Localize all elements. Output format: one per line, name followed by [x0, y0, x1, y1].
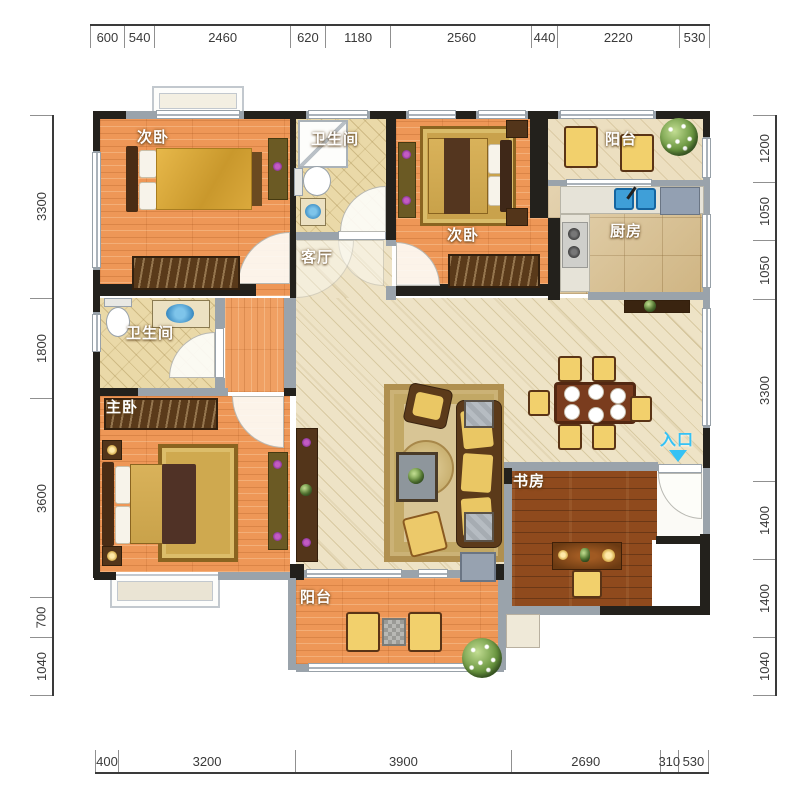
- flower-icon: [273, 532, 282, 541]
- side-table-icon: [464, 512, 494, 542]
- dim-segment: 3200: [119, 750, 296, 772]
- dim-label: 400: [96, 754, 118, 769]
- dim-label: 1400: [757, 584, 772, 613]
- dim-label: 1400: [757, 506, 772, 535]
- dim-segment: 400: [95, 750, 119, 772]
- dim-label: 440: [534, 30, 556, 45]
- dim-label: 1800: [34, 334, 49, 363]
- flower-icon: [273, 460, 282, 469]
- hallway-floor: [225, 298, 284, 392]
- wall-segment: [386, 240, 396, 246]
- window-icon: [92, 152, 101, 268]
- bay-window-bottom-icon: [110, 574, 220, 608]
- window-icon: [156, 110, 240, 119]
- toilet-tank-icon: [294, 168, 303, 196]
- balcony-seat-icon: [564, 126, 598, 168]
- dim-segment: 540: [125, 26, 156, 48]
- dim-segment: 530: [679, 750, 709, 772]
- wall-segment: [656, 536, 704, 544]
- dining-chair-icon: [558, 356, 582, 382]
- wall-segment: [530, 112, 548, 218]
- wall-segment: [244, 111, 306, 119]
- dim-label: 1040: [757, 652, 772, 681]
- plate-icon: [610, 388, 626, 404]
- dim-segment: 1400: [753, 560, 775, 638]
- dim-segment: 2460: [155, 26, 291, 48]
- dim-segment: 1800: [30, 299, 52, 399]
- dining-chair-icon: [592, 424, 616, 450]
- wall-segment: [284, 388, 296, 396]
- wall-segment: [296, 232, 338, 240]
- bay-window-glass: [159, 93, 237, 109]
- window-icon: [408, 110, 456, 119]
- dim-segment: 1040: [753, 638, 775, 696]
- dim-segment: 1400: [753, 482, 775, 560]
- dim-segment: 1200: [753, 115, 775, 183]
- window-icon: [418, 569, 448, 578]
- wall-segment: [288, 578, 296, 670]
- lamp-icon: [107, 551, 117, 561]
- dimension-ruler-left: 3300180036007001040: [30, 115, 54, 696]
- bed-icon: [130, 464, 164, 544]
- dim-segment: 2690: [512, 750, 661, 772]
- plant-icon: [300, 484, 312, 496]
- room-label-bathroom-left: 卫生间: [126, 322, 174, 343]
- desk-ornament-icon: [602, 549, 615, 562]
- dim-segment: 620: [291, 26, 326, 48]
- balcony-chair-icon: [408, 612, 442, 652]
- desk-plant-icon: [580, 548, 590, 562]
- window-icon: [702, 138, 711, 178]
- balcony-chair-icon: [346, 612, 380, 652]
- wall-segment: [218, 572, 296, 580]
- wall-segment: [386, 118, 396, 240]
- sink-basin-icon: [166, 304, 194, 323]
- dim-label: 3600: [34, 484, 49, 513]
- flower-icon: [302, 538, 311, 547]
- dim-segment: 2560: [391, 26, 532, 48]
- dining-chair-icon: [592, 356, 616, 382]
- dim-segment: 530: [680, 26, 710, 48]
- dim-label: 600: [97, 30, 119, 45]
- dim-segment: 310: [661, 750, 679, 772]
- wall-segment: [94, 388, 138, 396]
- plant-icon: [462, 638, 502, 678]
- wall-segment: [456, 111, 476, 119]
- kitchen-sink-icon: [636, 188, 656, 210]
- wall-segment: [600, 606, 710, 615]
- plate-icon: [564, 386, 580, 402]
- dim-label: 530: [683, 754, 705, 769]
- bed-headboard-icon: [500, 140, 512, 212]
- dim-label: 2690: [571, 754, 600, 769]
- wall-segment: [548, 218, 560, 300]
- dim-label: 3200: [193, 754, 222, 769]
- fridge-icon: [660, 187, 700, 215]
- dim-segment: 700: [30, 598, 52, 638]
- desk-lamp-icon: [558, 550, 568, 560]
- flower-icon: [273, 162, 282, 171]
- wall-segment: [284, 298, 296, 392]
- storage-cabinet-icon: [460, 552, 496, 582]
- door-leaf-icon: [215, 328, 224, 378]
- dimension-ruler-top: 6005402460620118025604402220530: [90, 24, 710, 48]
- sofa-cushion-icon: [461, 453, 494, 493]
- dim-segment: 440: [532, 26, 557, 48]
- dim-label: 3900: [389, 754, 418, 769]
- bed-bench-icon: [252, 152, 262, 206]
- dining-chair-icon: [558, 424, 582, 450]
- flower-icon: [402, 196, 411, 205]
- dim-segment: 3300: [30, 115, 52, 299]
- nightstand-icon: [506, 120, 528, 138]
- burner-icon: [568, 228, 580, 240]
- dimension-ruler-bottom: 400320039002690310530: [95, 750, 709, 774]
- dim-segment: 3600: [30, 399, 52, 598]
- window-icon: [702, 308, 711, 426]
- room-label-bedroom-top-right: 次卧: [447, 224, 479, 245]
- wall-segment: [700, 534, 710, 614]
- entry-door-leaf-icon: [658, 464, 702, 473]
- sink-basin-icon: [305, 204, 321, 219]
- window-icon: [560, 110, 654, 119]
- dim-segment: 1050: [753, 241, 775, 300]
- flower-icon: [402, 150, 411, 159]
- plate-icon: [588, 384, 604, 400]
- room-label-bathroom-top: 卫生间: [311, 128, 359, 149]
- room-label-master-bedroom: 主卧: [106, 396, 138, 417]
- wall-segment: [93, 111, 100, 151]
- dim-label: 2460: [208, 30, 237, 45]
- room-label-bedroom-top-left: 次卧: [137, 126, 169, 147]
- dim-label: 2220: [604, 30, 633, 45]
- dimension-ruler-right: 1200105010503300140014001040: [753, 115, 777, 696]
- dim-label: 700: [33, 607, 48, 629]
- dim-label: 2560: [447, 30, 476, 45]
- window-icon: [308, 110, 368, 119]
- wall-segment: [93, 270, 100, 312]
- bed-icon: [156, 148, 252, 210]
- dim-label: 3300: [34, 192, 49, 221]
- lamp-icon: [107, 445, 117, 455]
- door-leaf-icon: [338, 231, 386, 240]
- dim-label: 530: [684, 30, 706, 45]
- room-label-balcony-top: 阳台: [605, 128, 637, 149]
- room-label-balcony-bottom: 阳台: [300, 586, 332, 607]
- window-icon: [478, 110, 526, 119]
- side-table-icon: [464, 400, 494, 428]
- plant-icon: [644, 300, 656, 312]
- wall-segment: [93, 352, 100, 578]
- window-icon: [702, 214, 711, 288]
- dim-segment: 3300: [753, 300, 775, 482]
- dining-chair-icon: [630, 396, 652, 422]
- dim-label: 1180: [344, 30, 372, 45]
- wall-segment: [94, 572, 116, 580]
- dim-segment: 1040: [30, 638, 52, 696]
- wall-segment: [504, 470, 512, 610]
- plate-icon: [610, 404, 626, 420]
- burner-icon: [568, 246, 580, 258]
- wall-segment: [703, 111, 710, 137]
- entrance-arrow-icon: [669, 450, 687, 462]
- blanket-icon: [444, 138, 470, 214]
- dim-segment: 1180: [326, 26, 392, 48]
- room-label-living-room: 客厅: [301, 246, 333, 267]
- wall-segment: [138, 388, 228, 396]
- wardrobe-icon: [448, 254, 540, 288]
- console-table-icon: [624, 300, 690, 313]
- window-icon: [306, 569, 402, 578]
- pillow-icon: [115, 466, 131, 504]
- dim-segment: 3900: [296, 750, 512, 772]
- pillow-icon: [139, 182, 157, 210]
- toilet-icon: [303, 166, 331, 196]
- void-corner: [652, 540, 704, 610]
- pillow-icon: [139, 150, 157, 178]
- dim-label: 3300: [757, 376, 772, 405]
- pillow-icon: [115, 506, 131, 544]
- bed-headboard-icon: [126, 146, 138, 212]
- plant-icon: [660, 118, 698, 156]
- desk-chair-icon: [572, 570, 602, 598]
- plant-icon: [408, 468, 424, 484]
- dim-label: 620: [297, 30, 319, 45]
- wall-segment: [215, 298, 225, 328]
- wardrobe-icon: [132, 256, 240, 290]
- balcony-table-icon: [382, 618, 406, 646]
- entrance-label: 入口: [660, 426, 694, 450]
- room-label-study: 书房: [513, 470, 545, 491]
- plate-icon: [588, 407, 604, 423]
- dim-segment: 1050: [753, 183, 775, 242]
- flower-icon: [302, 438, 311, 447]
- dim-segment: 2220: [558, 26, 680, 48]
- window-icon: [92, 314, 101, 352]
- dining-chair-icon: [528, 390, 550, 416]
- room-label-kitchen: 厨房: [610, 220, 642, 241]
- dim-label: 540: [129, 30, 151, 45]
- wall-segment: [504, 468, 512, 484]
- bed-headboard-icon: [102, 462, 114, 546]
- dim-label: 1050: [757, 197, 772, 226]
- floorplan: 次卧 卫生间 次卧 阳台 厨房 客厅 卫生间 主卧 书房 阳台 入口: [0, 0, 800, 800]
- wall-segment: [386, 286, 396, 300]
- dim-label: 1040: [34, 652, 49, 681]
- wall-segment: [588, 292, 704, 300]
- nightstand-icon: [506, 208, 528, 226]
- wall-segment: [703, 428, 710, 468]
- exterior-ledge: [506, 614, 540, 648]
- dim-label: 1200: [757, 134, 772, 163]
- dim-segment: 600: [90, 26, 125, 48]
- dim-label: 1050: [757, 256, 772, 285]
- bay-window-glass: [117, 581, 213, 601]
- plate-icon: [564, 404, 580, 420]
- blanket-icon: [162, 464, 196, 544]
- dim-label: 310: [658, 754, 680, 769]
- toilet-tank-icon: [104, 298, 132, 307]
